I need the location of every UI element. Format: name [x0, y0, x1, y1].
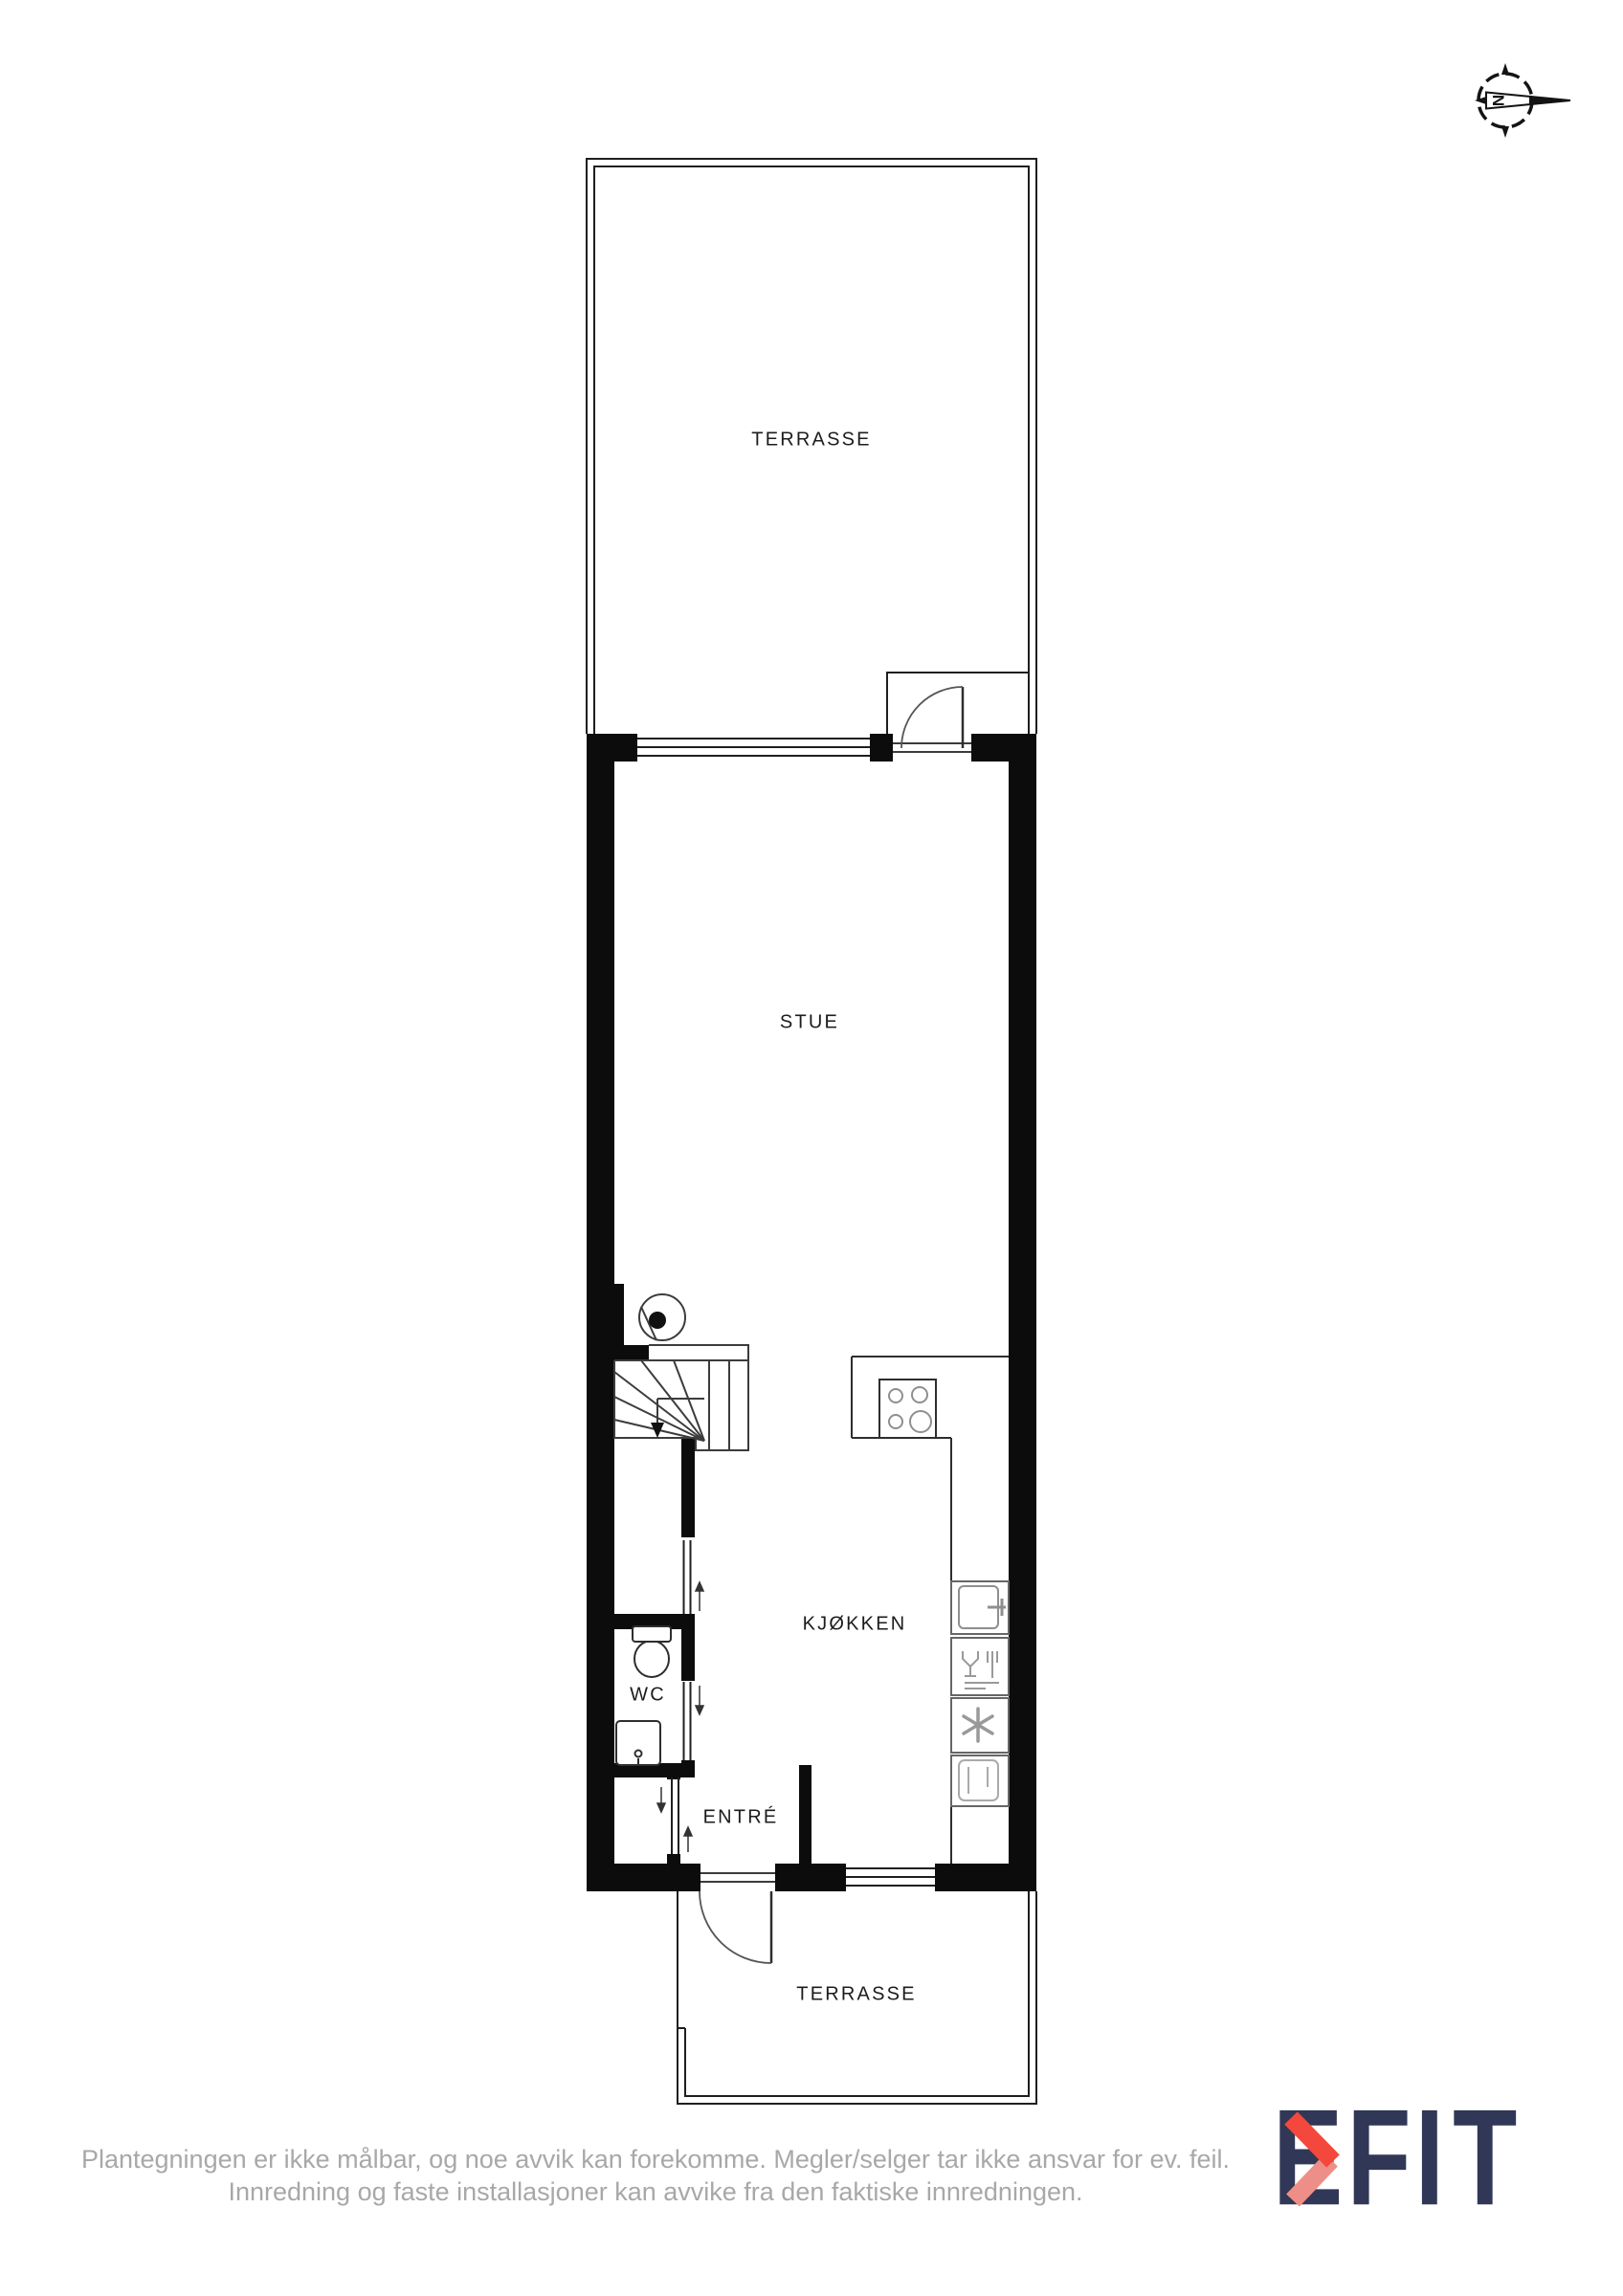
interior-doors: [672, 1540, 691, 1854]
window-bottom: [846, 1864, 935, 1891]
entrance-door: [700, 1891, 771, 1963]
wall-bottom-left-block: [587, 1864, 700, 1891]
efkt-logo: EF IT: [1273, 2110, 1525, 2212]
closet-door-cap-bottom: [667, 1854, 680, 1864]
dishwasher-unit: [951, 1638, 1009, 1695]
wc-sink-icon: [616, 1721, 660, 1765]
door-thresholds: [700, 743, 971, 1882]
wall-top-mid-block: [870, 734, 893, 762]
entre-wall-stub: [799, 1765, 811, 1864]
floor-plan-page: N TERRASSE STUE KJØKKEN WC ENTRÉ TERRASS…: [0, 0, 1623, 2296]
terrace-door: [901, 687, 963, 748]
compass-icon: N: [1475, 63, 1570, 138]
wall-bottom-mid-block: [775, 1864, 846, 1891]
floor-plan-drawing: N: [0, 0, 1623, 2296]
logo-letters-it: IT: [1415, 2105, 1526, 2212]
room-label-wc: WC: [630, 1685, 666, 1707]
wall-step: [614, 1284, 624, 1347]
disclaimer-text: Plantegningen er ikke målbar, og noe avv…: [81, 2143, 1230, 2208]
room-label-stue: STUE: [780, 1012, 839, 1034]
room-label-terrace-bottom: TERRASSE: [796, 1984, 916, 2006]
room-label-terrace-top: TERRASSE: [751, 430, 871, 452]
room-label-kjokken: KJØKKEN: [803, 1614, 907, 1636]
room-label-entre: ENTRÉ: [703, 1807, 779, 1829]
compass-north-letter: N: [1489, 95, 1507, 106]
wall-right: [1009, 734, 1036, 1891]
disclaimer-line-2: Innredning og faste installasjoner kan a…: [81, 2175, 1230, 2208]
window-top: [637, 734, 870, 762]
toilet-icon: [633, 1626, 671, 1677]
wall-top-left-block: [587, 734, 637, 762]
stairs: [614, 1345, 748, 1450]
wall-partition-a: [681, 1438, 695, 1537]
disclaimer-line-1: Plantegningen er ikke målbar, og noe avv…: [81, 2143, 1230, 2175]
entry-niche-line: [887, 673, 1029, 734]
logo-chevron-icon: [1284, 2110, 1340, 2210]
cooktop-icon: [879, 1380, 936, 1438]
wall-left: [587, 734, 614, 1891]
wall-bottom-right-block: [935, 1864, 1036, 1891]
wood-stove-icon: [639, 1294, 685, 1340]
wall-top-right-block: [971, 734, 1036, 762]
wall-partition-b: [681, 1614, 695, 1681]
stair-wall-stub: [614, 1345, 649, 1360]
